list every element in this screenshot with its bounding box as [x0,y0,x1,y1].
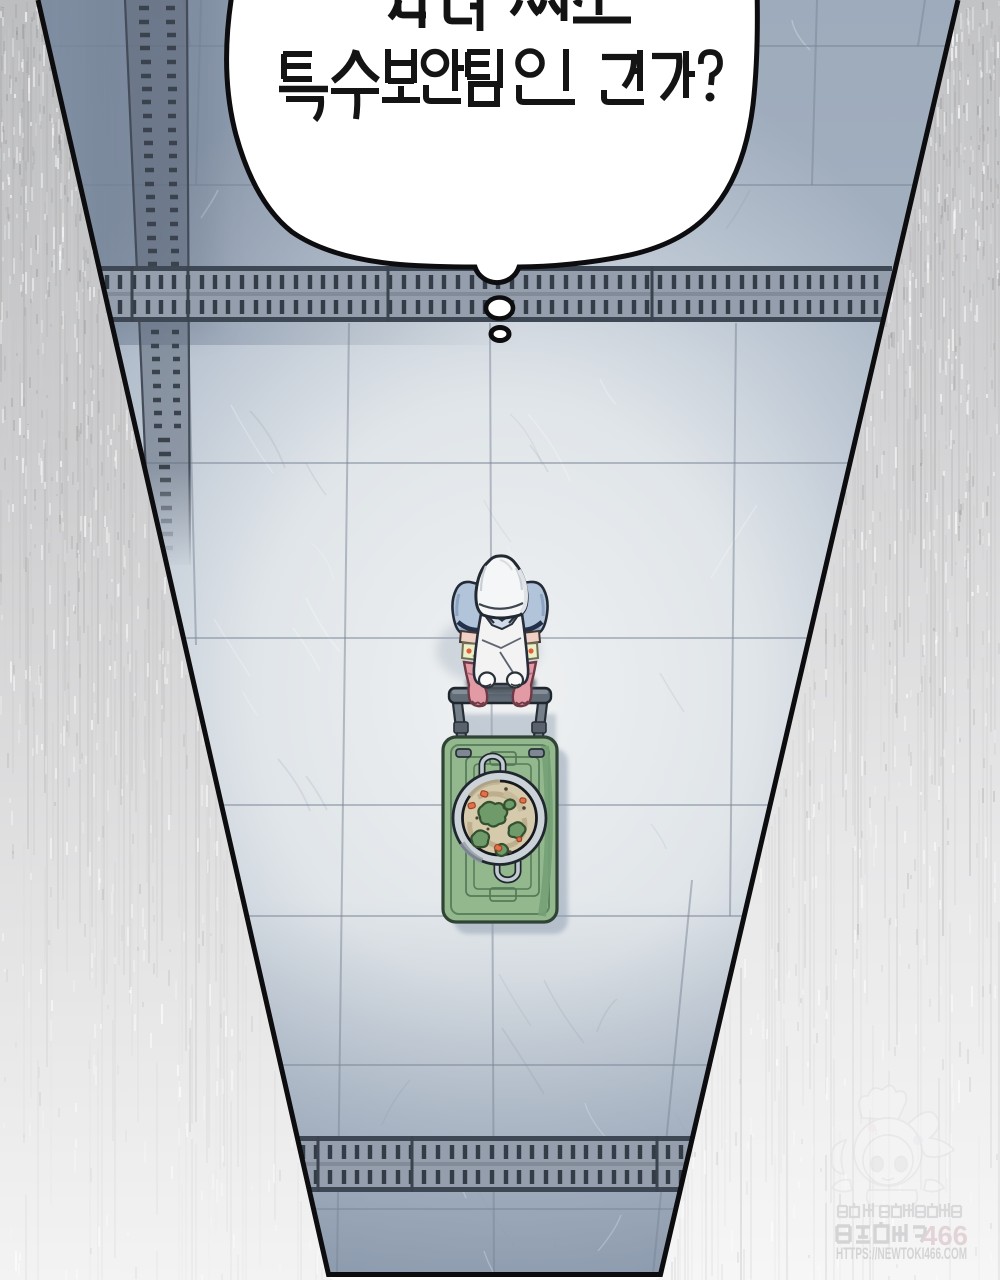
svg-text:HTTPS://NEWTOKI466.COM: HTTPS://NEWTOKI466.COM [836,1245,967,1263]
